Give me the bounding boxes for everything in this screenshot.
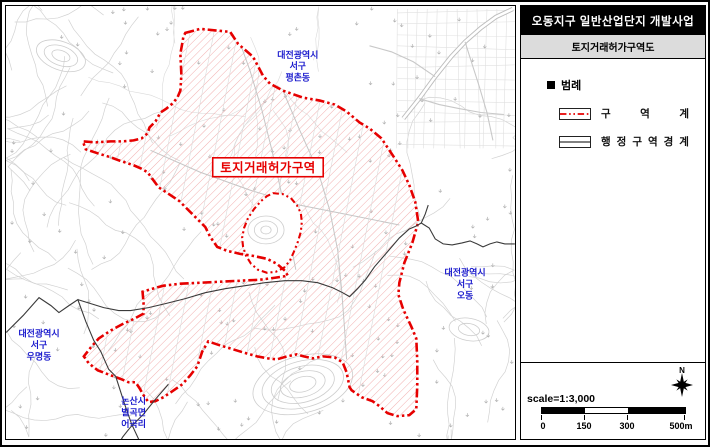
admin-boundary-line (421, 205, 428, 223)
map-area: 대전광역시서구평촌동대전광역시서구오동대전광역시서구우명동논산시벌곡면어곡리토지… (5, 5, 516, 440)
scale-tick-500: 500m (669, 421, 692, 431)
legend-item-admin-boundary: 행정구역경계 (559, 134, 689, 149)
scale-bar (541, 407, 686, 414)
scale-ratio-text: scale=1:3,000 (527, 393, 595, 405)
district-label-3: 논산시벌곡면어곡리 (121, 395, 146, 429)
scale-tick-0: 0 (540, 421, 545, 431)
zone-label: 토지거래허가구역 (220, 160, 316, 175)
legend-label-admin-boundary: 행정구역경계 (601, 134, 689, 149)
district-label-1: 대전광역시서구오동 (444, 267, 485, 301)
district-label-2: 대전광역시서구우명동 (18, 327, 59, 361)
scale-tick-150: 150 (576, 421, 591, 431)
compass-star-icon (669, 372, 695, 398)
map-doc-title: 토지거래허가구역도 (521, 35, 705, 59)
admin-boundary-line (421, 223, 515, 247)
zone-boundary-line-icon (559, 108, 591, 120)
legend: 범례 구역계 행정구역경계 (521, 59, 705, 362)
legend-label-zone-boundary: 구역계 (601, 106, 689, 121)
scale-ticks: 0 150 300 500m (541, 414, 685, 434)
info-panel: 오동지구 일반산업단지 개발사업 토지거래허가구역도 범례 구역계 행정구역경계… (520, 5, 706, 440)
north-arrow: N (668, 366, 696, 403)
cadastral-map: 대전광역시서구평촌동대전광역시서구오동대전광역시서구우명동논산시벌곡면어곡리토지… (6, 6, 515, 439)
admin-boundary-line-icon (559, 136, 591, 148)
legend-bullet-icon (547, 81, 555, 89)
legend-title: 범례 (561, 77, 581, 93)
project-title: 오동지구 일반산업단지 개발사업 (521, 6, 705, 35)
district-label-0: 대전광역시서구평촌동 (277, 49, 318, 83)
scale-tick-300: 300 (619, 421, 634, 431)
scale-section: N scale=1:3,000 0 150 300 500m (521, 362, 705, 439)
legend-item-zone-boundary: 구역계 (559, 106, 689, 121)
